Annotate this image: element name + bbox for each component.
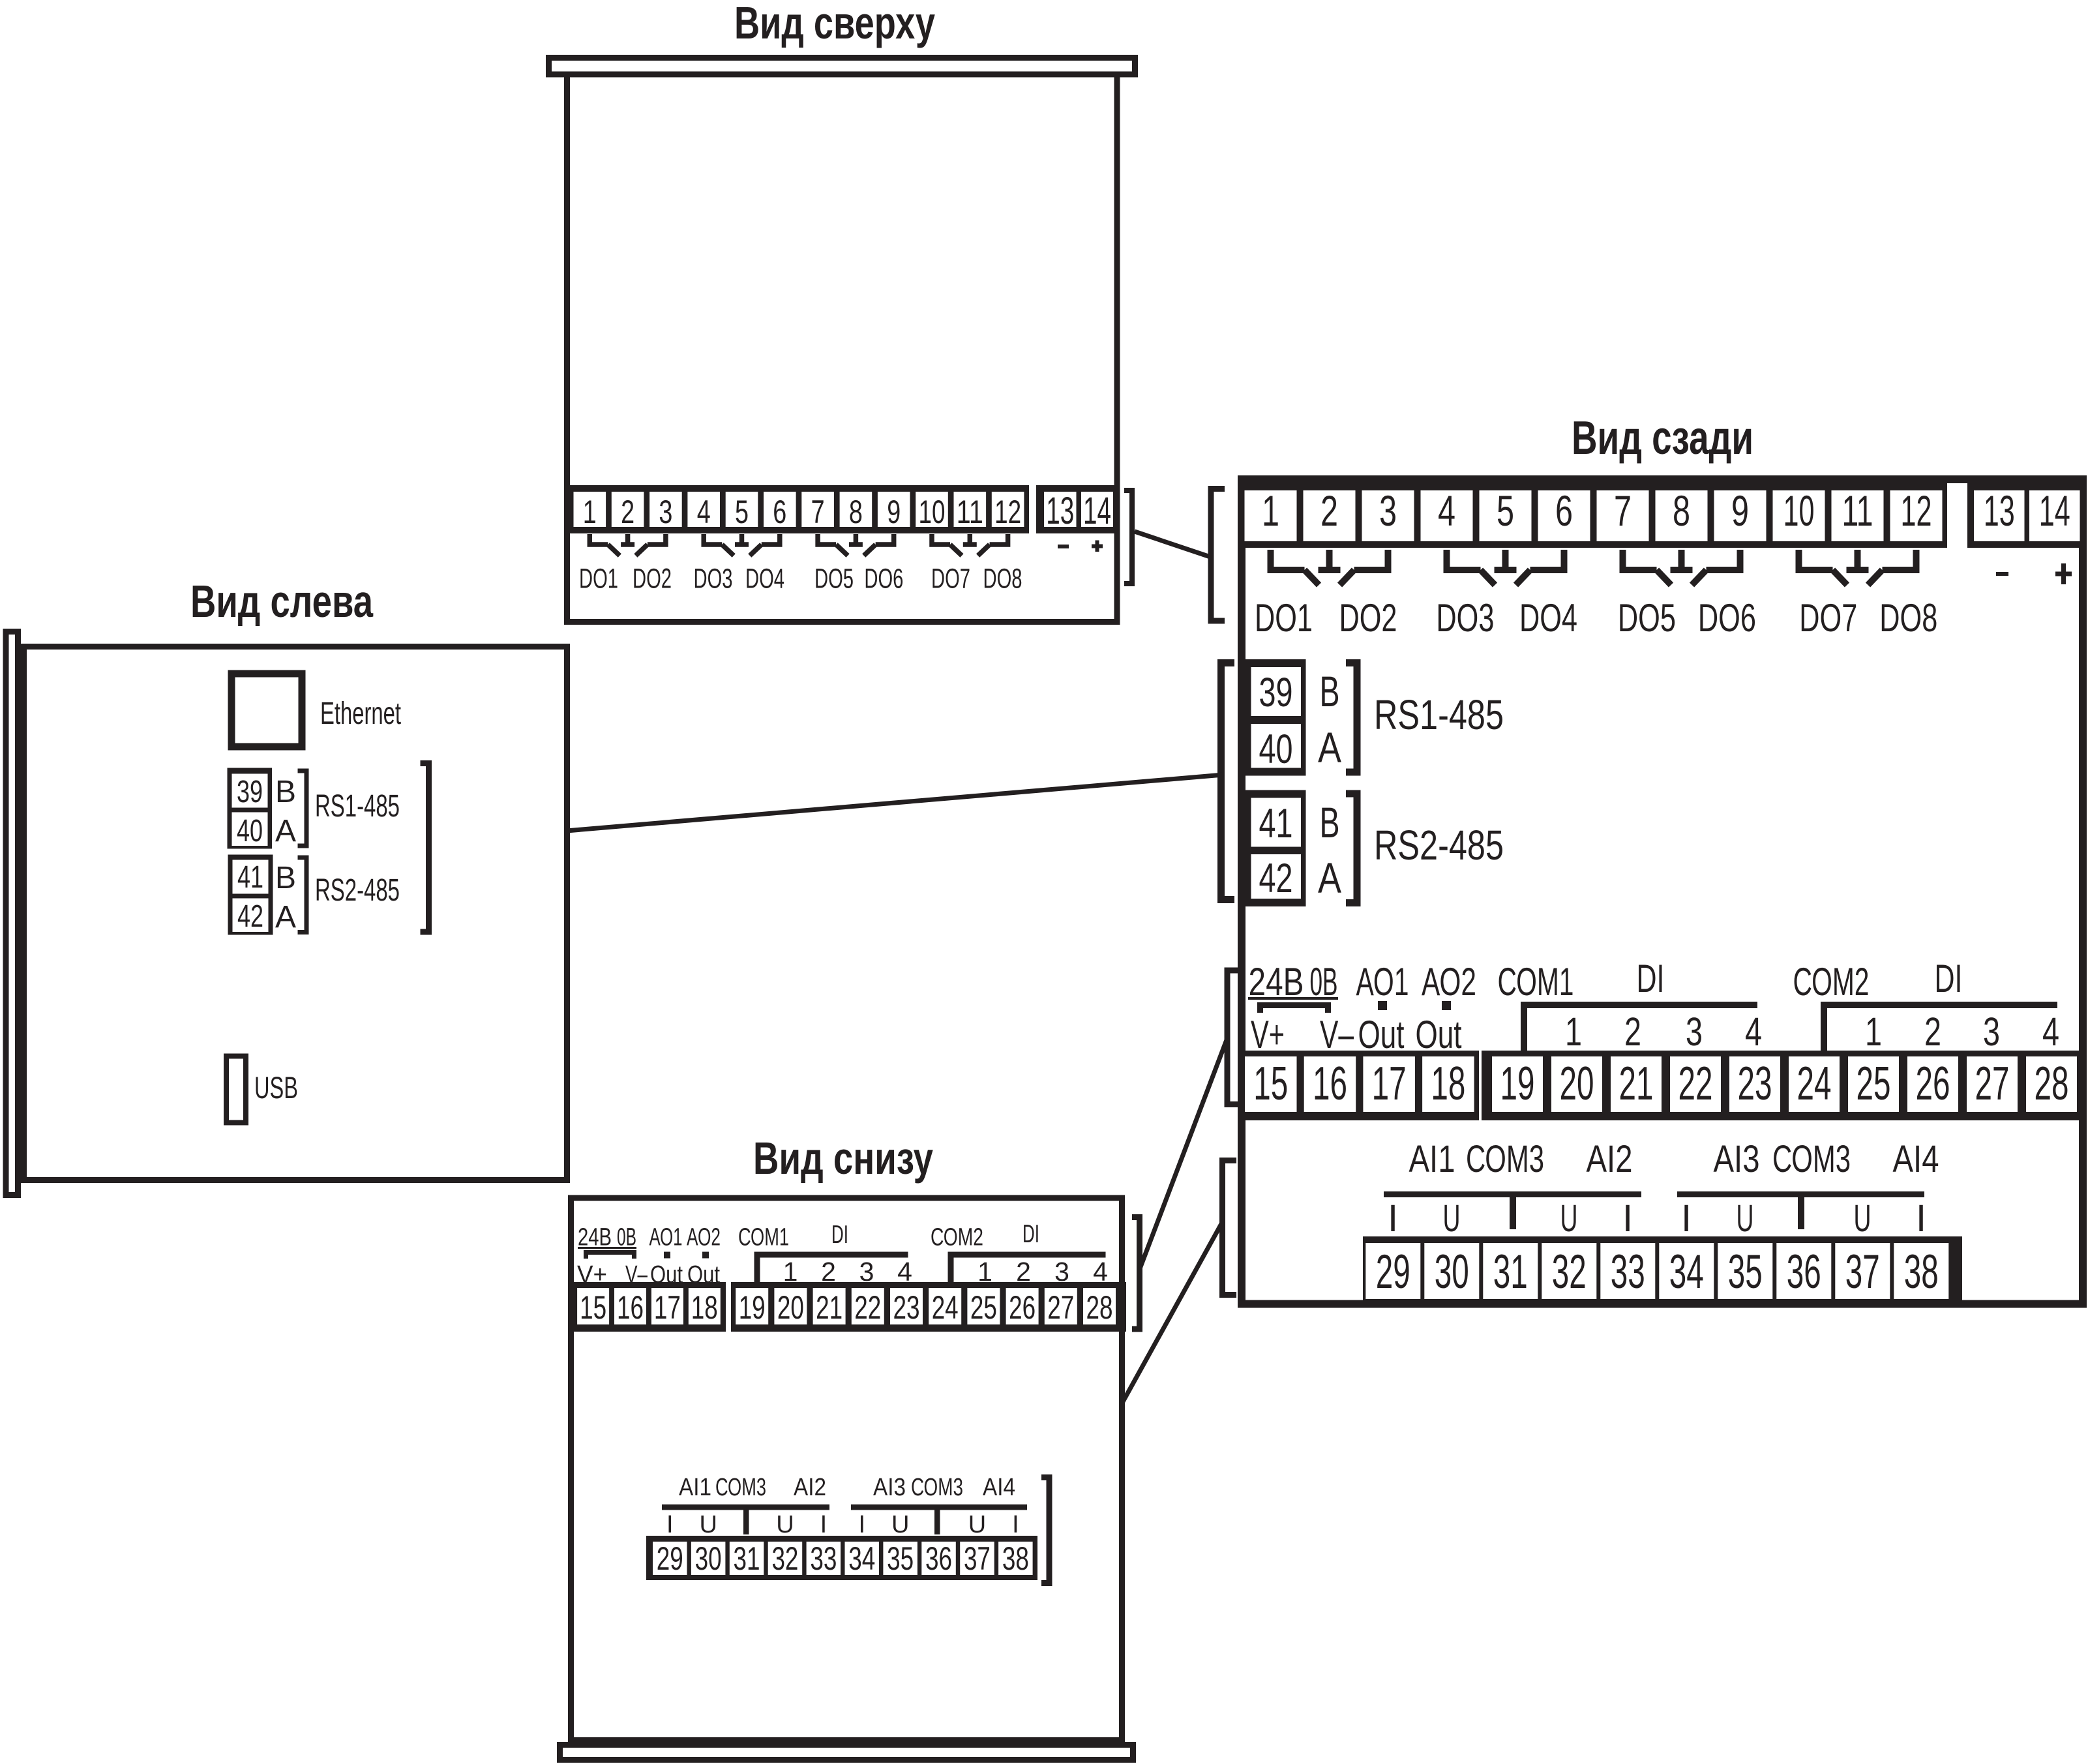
svg-text:B: B xyxy=(275,861,296,895)
svg-text:32: 32 xyxy=(1552,1246,1587,1298)
svg-text:DO7: DO7 xyxy=(1799,596,1857,640)
svg-text:37: 37 xyxy=(1845,1246,1880,1298)
svg-text:DO8: DO8 xyxy=(983,563,1022,595)
svg-text:4: 4 xyxy=(1745,1009,1762,1054)
svg-text:U: U xyxy=(776,1511,794,1538)
svg-text:I: I xyxy=(820,1511,828,1538)
svg-text:СОМ3: СОМ3 xyxy=(1772,1138,1851,1180)
svg-text:31: 31 xyxy=(1493,1246,1528,1298)
svg-text:АI3: АI3 xyxy=(873,1474,906,1501)
svg-text:B: B xyxy=(1320,667,1340,715)
svg-text:Вид сзади: Вид сзади xyxy=(1572,412,1753,464)
svg-text:36: 36 xyxy=(1787,1246,1821,1298)
svg-text:11: 11 xyxy=(957,494,983,530)
svg-text:24: 24 xyxy=(1797,1058,1832,1110)
svg-text:37: 37 xyxy=(964,1540,991,1577)
svg-text:RS2-485: RS2-485 xyxy=(315,873,400,908)
svg-text:13: 13 xyxy=(1046,490,1074,532)
svg-text:4: 4 xyxy=(1438,486,1455,535)
svg-text:V–: V– xyxy=(1320,1013,1354,1056)
svg-text:41: 41 xyxy=(237,860,263,895)
svg-text:26: 26 xyxy=(1916,1058,1950,1110)
svg-text:I: I xyxy=(859,1511,866,1538)
svg-text:16: 16 xyxy=(617,1289,644,1326)
svg-text:RS1-485: RS1-485 xyxy=(1374,691,1504,738)
svg-text:I: I xyxy=(1916,1197,1926,1240)
svg-text:B: B xyxy=(1320,798,1340,846)
svg-text:39: 39 xyxy=(237,775,263,809)
svg-text:1: 1 xyxy=(1565,1009,1582,1054)
svg-text:21: 21 xyxy=(816,1289,843,1326)
svg-text:30: 30 xyxy=(695,1540,722,1577)
svg-text:U: U xyxy=(699,1511,717,1538)
svg-text:39: 39 xyxy=(1259,670,1293,715)
svg-text:3: 3 xyxy=(1983,1009,2000,1054)
svg-text:29: 29 xyxy=(657,1540,683,1577)
svg-text:7: 7 xyxy=(1614,486,1632,535)
svg-text:25: 25 xyxy=(970,1289,997,1326)
svg-text:42: 42 xyxy=(1259,856,1293,901)
svg-text:DI: DI xyxy=(1022,1220,1039,1248)
svg-text:27: 27 xyxy=(1047,1289,1074,1326)
svg-text:I: I xyxy=(1388,1197,1398,1240)
svg-text:СОМ3: СОМ3 xyxy=(715,1474,766,1501)
svg-text:АI1: АI1 xyxy=(679,1474,711,1501)
svg-text:24В: 24В xyxy=(1249,960,1304,1004)
svg-text:RS1-485: RS1-485 xyxy=(315,789,400,824)
svg-text:2: 2 xyxy=(1320,486,1338,535)
svg-text:DO4: DO4 xyxy=(745,563,784,595)
svg-text:24: 24 xyxy=(932,1289,959,1326)
svg-text:СОМ2: СОМ2 xyxy=(1793,960,1870,1004)
svg-text:41: 41 xyxy=(1259,801,1293,846)
svg-text:12: 12 xyxy=(994,494,1021,530)
svg-text:27: 27 xyxy=(1975,1058,2010,1110)
svg-text:19: 19 xyxy=(1500,1058,1535,1110)
svg-text:DI: DI xyxy=(831,1221,848,1249)
svg-text:RS2-485: RS2-485 xyxy=(1374,822,1504,869)
svg-text:38: 38 xyxy=(1904,1246,1939,1298)
svg-text:5: 5 xyxy=(1497,486,1514,535)
svg-text:DO5: DO5 xyxy=(814,563,854,595)
svg-text:20: 20 xyxy=(777,1289,804,1326)
svg-text:A: A xyxy=(275,814,296,848)
svg-text:7: 7 xyxy=(811,494,825,530)
svg-text:Out: Out xyxy=(1416,1013,1462,1056)
svg-text:5: 5 xyxy=(735,494,749,530)
svg-text:34: 34 xyxy=(1669,1246,1704,1298)
svg-text:АО1: АО1 xyxy=(649,1224,683,1251)
svg-text:DO1: DO1 xyxy=(579,563,618,595)
svg-text:26: 26 xyxy=(1009,1289,1036,1326)
svg-text:13: 13 xyxy=(1984,486,2015,535)
svg-text:U: U xyxy=(1737,1197,1754,1240)
svg-text:16: 16 xyxy=(1313,1058,1347,1110)
svg-text:31: 31 xyxy=(734,1540,760,1577)
svg-text:1: 1 xyxy=(1865,1009,1882,1054)
svg-text:DO3: DO3 xyxy=(694,563,733,595)
svg-text:2: 2 xyxy=(621,494,634,530)
svg-text:10: 10 xyxy=(1783,486,1815,535)
svg-text:25: 25 xyxy=(1857,1058,1891,1110)
svg-text:DO1: DO1 xyxy=(1255,596,1313,640)
svg-text:2: 2 xyxy=(1924,1009,1941,1054)
svg-text:U: U xyxy=(1560,1197,1578,1240)
svg-text:СОМ1: СОМ1 xyxy=(1498,960,1574,1004)
svg-text:DI: DI xyxy=(1935,957,1963,1000)
svg-text:17: 17 xyxy=(1372,1058,1407,1110)
svg-text:4: 4 xyxy=(697,494,711,530)
svg-text:U: U xyxy=(1854,1197,1872,1240)
svg-text:36: 36 xyxy=(925,1540,952,1577)
svg-text:22: 22 xyxy=(854,1289,881,1326)
svg-text:3: 3 xyxy=(1686,1009,1703,1054)
svg-text:4: 4 xyxy=(2042,1009,2059,1054)
svg-text:B: B xyxy=(275,775,296,809)
svg-text:6: 6 xyxy=(1555,486,1573,535)
svg-text:Вид сверху: Вид сверху xyxy=(734,0,935,48)
svg-text:6: 6 xyxy=(773,494,786,530)
svg-text:DO8: DO8 xyxy=(1879,596,1937,640)
svg-text:U: U xyxy=(891,1511,909,1538)
svg-text:АI3: АI3 xyxy=(1714,1138,1760,1180)
svg-text:42: 42 xyxy=(237,899,263,934)
svg-text:3: 3 xyxy=(1379,486,1397,535)
svg-text:10: 10 xyxy=(919,494,946,530)
svg-text:15: 15 xyxy=(580,1289,606,1326)
svg-text:СОМ3: СОМ3 xyxy=(911,1474,963,1501)
svg-text:DI: DI xyxy=(1637,957,1665,1000)
svg-text:V+: V+ xyxy=(1251,1013,1285,1056)
svg-text:A: A xyxy=(1318,723,1341,771)
svg-text:19: 19 xyxy=(739,1289,766,1326)
svg-text:34: 34 xyxy=(848,1540,875,1577)
svg-text:СОМ2: СОМ2 xyxy=(931,1224,983,1251)
svg-text:38: 38 xyxy=(1002,1540,1029,1577)
svg-text:17: 17 xyxy=(654,1289,681,1326)
svg-text:I: I xyxy=(1681,1197,1692,1240)
svg-text:35: 35 xyxy=(1728,1246,1763,1298)
svg-text:30: 30 xyxy=(1435,1246,1469,1298)
svg-text:23: 23 xyxy=(1738,1058,1772,1110)
svg-text:22: 22 xyxy=(1678,1058,1713,1110)
svg-text:СОМ3: СОМ3 xyxy=(1466,1138,1544,1180)
svg-text:USB: USB xyxy=(254,1070,298,1105)
svg-text:14: 14 xyxy=(1083,490,1111,532)
svg-text:DO4: DO4 xyxy=(1519,596,1577,640)
svg-text:40: 40 xyxy=(1259,726,1293,772)
svg-text:32: 32 xyxy=(771,1540,798,1577)
svg-text:18: 18 xyxy=(1431,1058,1465,1110)
svg-text:33: 33 xyxy=(1611,1246,1645,1298)
svg-text:18: 18 xyxy=(691,1289,718,1326)
svg-text:40: 40 xyxy=(237,814,263,848)
svg-text:A: A xyxy=(1318,854,1341,902)
svg-text:Out: Out xyxy=(1358,1013,1405,1056)
svg-text:АI4: АI4 xyxy=(1893,1138,1939,1180)
svg-text:3: 3 xyxy=(659,494,672,530)
svg-text:1: 1 xyxy=(1262,486,1279,535)
svg-text:A: A xyxy=(275,900,296,934)
svg-text:АI2: АI2 xyxy=(794,1474,826,1501)
svg-text:Вид слева: Вид слева xyxy=(190,576,374,627)
svg-text:АI4: АI4 xyxy=(983,1474,1015,1501)
svg-text:DO2: DO2 xyxy=(1339,596,1397,640)
svg-text:8: 8 xyxy=(849,494,863,530)
svg-text:28: 28 xyxy=(2035,1058,2069,1110)
svg-text:8: 8 xyxy=(1673,486,1690,535)
svg-text:9: 9 xyxy=(887,494,901,530)
svg-text:АО2: АО2 xyxy=(1422,960,1476,1004)
svg-text:20: 20 xyxy=(1560,1058,1594,1110)
svg-text:АI2: АI2 xyxy=(1587,1138,1633,1180)
svg-text:U: U xyxy=(1443,1197,1461,1240)
svg-text:29: 29 xyxy=(1376,1246,1410,1298)
svg-text:0В: 0В xyxy=(1310,960,1338,1004)
svg-text:U: U xyxy=(968,1511,986,1538)
svg-text:DO5: DO5 xyxy=(1618,596,1676,640)
svg-text:12: 12 xyxy=(1901,486,1932,535)
svg-text:11: 11 xyxy=(1842,486,1873,535)
svg-text:14: 14 xyxy=(2039,486,2070,535)
svg-text:1: 1 xyxy=(583,494,597,530)
svg-text:АО1: АО1 xyxy=(1356,960,1409,1004)
svg-text:28: 28 xyxy=(1086,1289,1113,1326)
svg-text:9: 9 xyxy=(1731,486,1749,535)
svg-text:Вид снизу: Вид снизу xyxy=(753,1133,933,1184)
svg-text:23: 23 xyxy=(893,1289,920,1326)
svg-text:DO6: DO6 xyxy=(1698,596,1756,640)
svg-text:Ethernet: Ethernet xyxy=(320,696,401,731)
svg-text:DO2: DO2 xyxy=(633,563,672,595)
svg-text:I: I xyxy=(1622,1197,1633,1240)
svg-text:I: I xyxy=(1012,1511,1019,1538)
svg-text:DO3: DO3 xyxy=(1436,596,1494,640)
svg-text:I: I xyxy=(666,1511,674,1538)
svg-text:35: 35 xyxy=(887,1540,914,1577)
svg-text:2: 2 xyxy=(1624,1009,1641,1054)
svg-text:АI1: АI1 xyxy=(1409,1138,1455,1180)
svg-text:DO6: DO6 xyxy=(864,563,903,595)
svg-text:33: 33 xyxy=(810,1540,837,1577)
svg-text:21: 21 xyxy=(1619,1058,1654,1110)
svg-text:15: 15 xyxy=(1253,1058,1288,1110)
svg-text:СОМ1: СОМ1 xyxy=(738,1224,789,1251)
svg-text:DO7: DO7 xyxy=(931,563,970,595)
svg-text:АО2: АО2 xyxy=(687,1224,721,1251)
